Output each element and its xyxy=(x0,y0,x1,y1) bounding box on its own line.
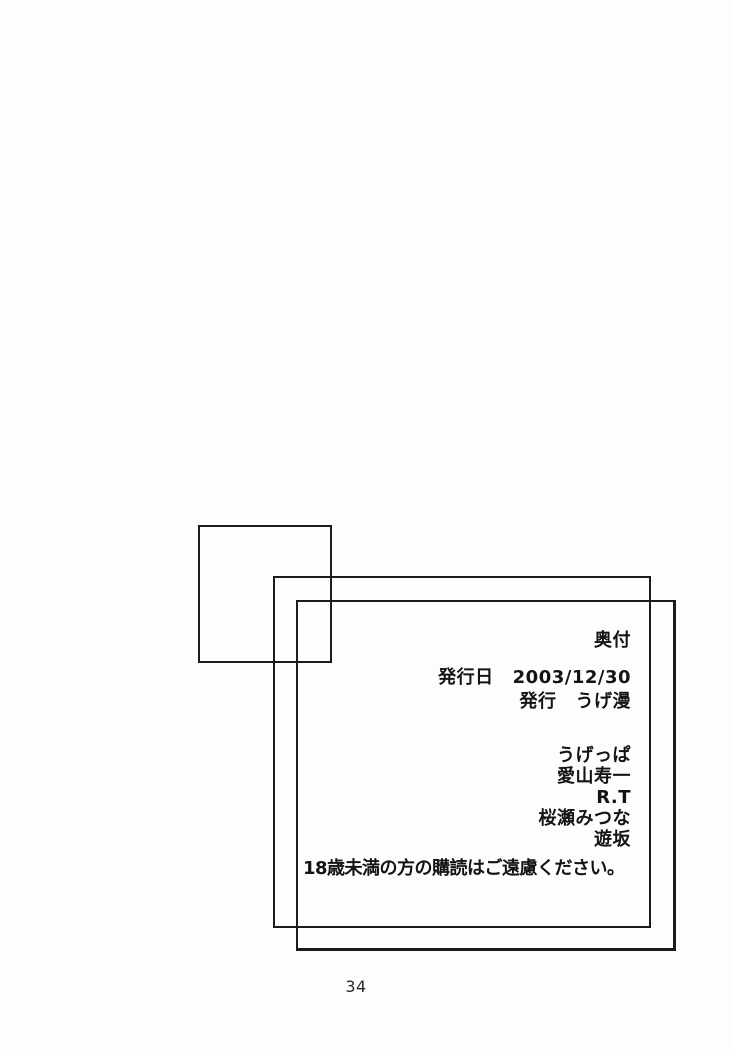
credits-list: うげっぱ 愛山寿一 R.T 桜瀬みつな 遊坂 xyxy=(539,745,632,850)
credit-name: うげっぱ xyxy=(539,745,632,766)
publication-info: 発行日 2003/12/30 発行 うげ漫 xyxy=(438,666,631,714)
page-number: 34 xyxy=(338,977,374,996)
scanned-colophon-page: 奥付 発行日 2003/12/30 発行 うげ漫 うげっぱ 愛山寿一 R.T 桜… xyxy=(0,0,731,1050)
publisher-value: うげ漫 xyxy=(576,690,632,714)
age-restriction-notice: 18歳未満の方の購読はご遠慮ください。 xyxy=(303,857,625,880)
publisher-row: 発行 うげ漫 xyxy=(520,690,632,714)
credit-name: 遊坂 xyxy=(539,829,632,850)
credit-name: R.T xyxy=(539,787,632,808)
colophon-title: 奥付 xyxy=(594,631,631,651)
credit-name: 愛山寿一 xyxy=(539,766,632,787)
credit-name: 桜瀬みつな xyxy=(539,808,632,829)
publication-date-row: 発行日 2003/12/30 xyxy=(438,666,631,690)
publisher-label: 発行 xyxy=(520,690,557,714)
publication-date-label: 発行日 xyxy=(438,666,494,690)
publication-date-value: 2003/12/30 xyxy=(513,666,631,690)
